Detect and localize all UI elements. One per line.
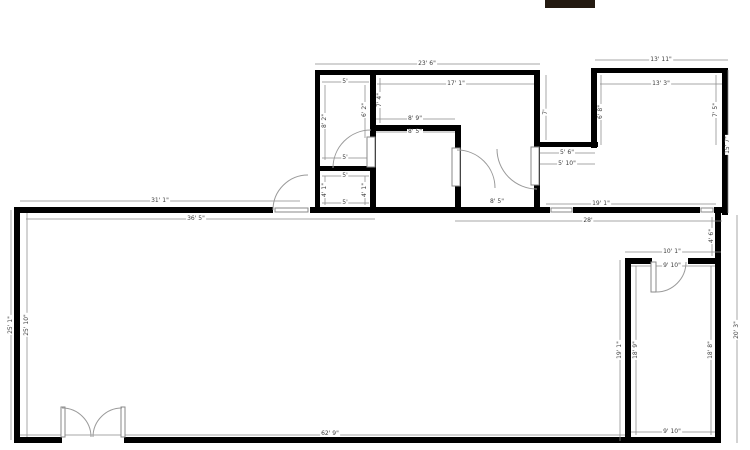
dimension-label: 17' 1" xyxy=(446,81,466,87)
wall-bottom-2 xyxy=(124,437,721,443)
dimension-label: 36' 5" xyxy=(186,216,206,222)
dimension-label: 8' 5" xyxy=(407,129,423,135)
double-door-left-arc xyxy=(62,408,91,437)
closet-door-arc xyxy=(333,130,371,168)
dimension-label: 4' 6" xyxy=(709,228,715,244)
wall-brroom-top-1 xyxy=(625,258,652,264)
dimension-label: 31' 1" xyxy=(150,198,170,204)
brroom-door-leaf xyxy=(651,262,656,292)
double-door-left-leaf xyxy=(61,407,65,437)
dimension-label: 13' 3" xyxy=(651,81,671,87)
dimension-label: 15' 7" xyxy=(725,135,731,155)
dimension-label: 6' 2" xyxy=(362,102,368,118)
wall-top-right-room xyxy=(595,68,728,73)
wall-main-horizontal-2 xyxy=(310,207,550,213)
dimension-label: 4' 1" xyxy=(322,182,328,198)
dimension-label: 10' 1" xyxy=(662,249,682,255)
dimension-label: 8' 9" xyxy=(407,116,423,122)
dimension-label: 20' 3" xyxy=(734,320,740,340)
dimension-label: 18' 8" xyxy=(708,340,714,360)
wall-outer-left xyxy=(14,207,20,443)
wall-passage-bottom xyxy=(540,142,598,147)
dimension-label: 7' xyxy=(543,108,549,115)
dimension-label: 13' 11" xyxy=(649,57,673,63)
dimension-label: 7' 5" xyxy=(713,102,719,118)
wall-closet-divider xyxy=(315,166,376,171)
double-door-right-leaf xyxy=(121,407,125,437)
dimension-label: 18' 9" xyxy=(633,340,639,360)
dimension-label: 8' 2" xyxy=(322,113,328,129)
title-block xyxy=(545,0,595,8)
dimension-label: 5' xyxy=(341,173,348,179)
dimension-label: 8' 5" xyxy=(489,199,505,205)
wall-opening-slider-2 xyxy=(701,208,713,212)
door-panels xyxy=(61,137,713,437)
dimension-label: 5' xyxy=(341,155,348,161)
dimension-label: 62' 9" xyxy=(320,431,340,437)
dimension-label: 28' xyxy=(582,218,593,224)
dimension-label: 9' 10" xyxy=(662,429,682,435)
dimension-label: 6' 8" xyxy=(598,104,604,120)
wall-main-horizontal-3 xyxy=(573,207,700,213)
dimension-label: 19' 1" xyxy=(617,340,623,360)
double-door-right-arc xyxy=(93,408,122,437)
main-wall-door-arc xyxy=(273,175,308,210)
midroom-left-door-arc xyxy=(457,150,495,188)
dimension-label: 25' 10" xyxy=(24,313,30,337)
wall-top-center xyxy=(315,70,540,75)
wall-closet-right xyxy=(370,70,376,213)
wall-bottom-1 xyxy=(14,437,62,443)
dimension-label: 4' 1" xyxy=(362,182,368,198)
wall-opening-slider-1 xyxy=(551,208,572,212)
dimension-label: 19' 1" xyxy=(591,201,611,207)
wall-brroom-left xyxy=(625,258,631,443)
wall-midroom-left xyxy=(455,125,461,213)
dimension-label: 5' 6" xyxy=(559,150,575,156)
dimension-label: 5' xyxy=(341,200,348,206)
dimension-label: 9' 10" xyxy=(662,263,682,269)
midroom-right-door-arc xyxy=(497,149,537,189)
main-wall-door-leaf xyxy=(275,208,308,212)
wall-closet-left xyxy=(315,70,320,213)
dimension-label: 5' 10" xyxy=(557,161,577,167)
dimension-label: 23' 6" xyxy=(417,61,437,67)
wall-main-horizontal-1 xyxy=(14,207,273,213)
floor-plan: 23' 6"17' 1"13' 11"13' 3"5'5'8' 2"6' 2"7… xyxy=(0,0,750,450)
dimension-label: 25' 1" xyxy=(8,315,14,335)
dimension-label: 7' 4" xyxy=(377,92,383,108)
wall-outer-right-lower xyxy=(715,213,721,443)
dimension-label: 5' xyxy=(341,79,348,85)
